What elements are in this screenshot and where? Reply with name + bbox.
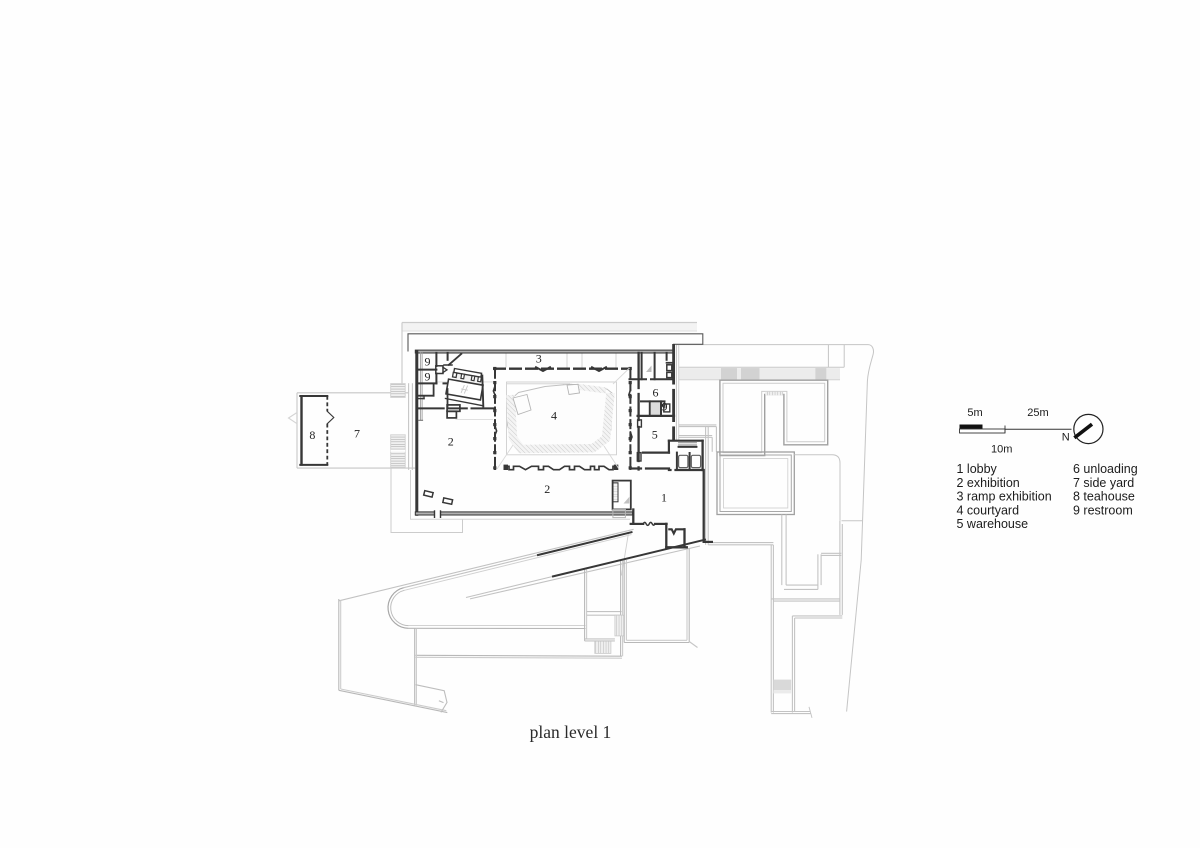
svg-text:plan level 1: plan level 1	[530, 722, 612, 742]
svg-text:2: 2	[448, 435, 454, 449]
svg-text:7 side yard: 7 side yard	[1073, 476, 1134, 490]
svg-text:25m: 25m	[1027, 407, 1048, 419]
svg-text:9: 9	[425, 355, 431, 369]
svg-text:8: 8	[309, 428, 315, 442]
svg-text:3: 3	[536, 352, 542, 366]
svg-text:7: 7	[354, 426, 360, 440]
svg-text:6: 6	[653, 386, 659, 400]
svg-text:8 teahouse: 8 teahouse	[1073, 490, 1135, 504]
svg-text:9: 9	[662, 400, 668, 414]
svg-text:2: 2	[544, 482, 550, 496]
svg-text:5m: 5m	[967, 407, 982, 419]
svg-text:1: 1	[661, 491, 667, 505]
svg-text:9 restroom: 9 restroom	[1073, 503, 1133, 517]
svg-text:2 exhibition: 2 exhibition	[957, 476, 1020, 490]
svg-text:3 ramp exhibition: 3 ramp exhibition	[957, 490, 1052, 504]
svg-text:9: 9	[425, 370, 431, 384]
svg-text:5: 5	[652, 428, 658, 442]
svg-text:6 unloading: 6 unloading	[1073, 462, 1138, 476]
svg-text:1 lobby: 1 lobby	[957, 462, 998, 476]
svg-text:4: 4	[551, 409, 557, 423]
svg-text:N: N	[1062, 432, 1070, 444]
svg-text:5 warehouse: 5 warehouse	[957, 517, 1029, 531]
svg-text:10m: 10m	[991, 444, 1012, 456]
svg-text:4 courtyard: 4 courtyard	[957, 503, 1020, 517]
